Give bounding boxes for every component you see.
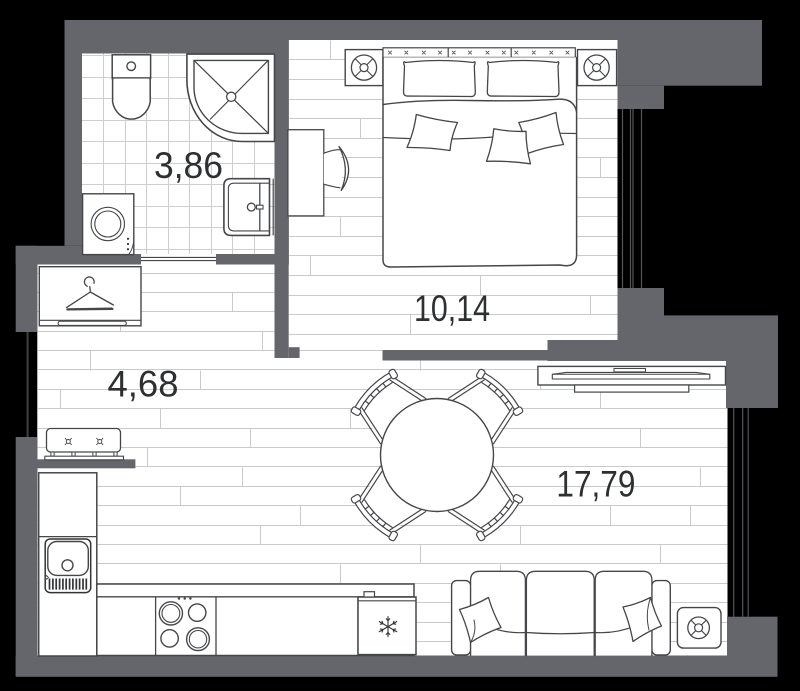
svg-text:4,68: 4,68 [108, 363, 179, 405]
svg-text:3,86: 3,86 [154, 144, 223, 186]
svg-text:17,79: 17,79 [556, 463, 635, 505]
svg-text:10,14: 10,14 [414, 287, 490, 329]
